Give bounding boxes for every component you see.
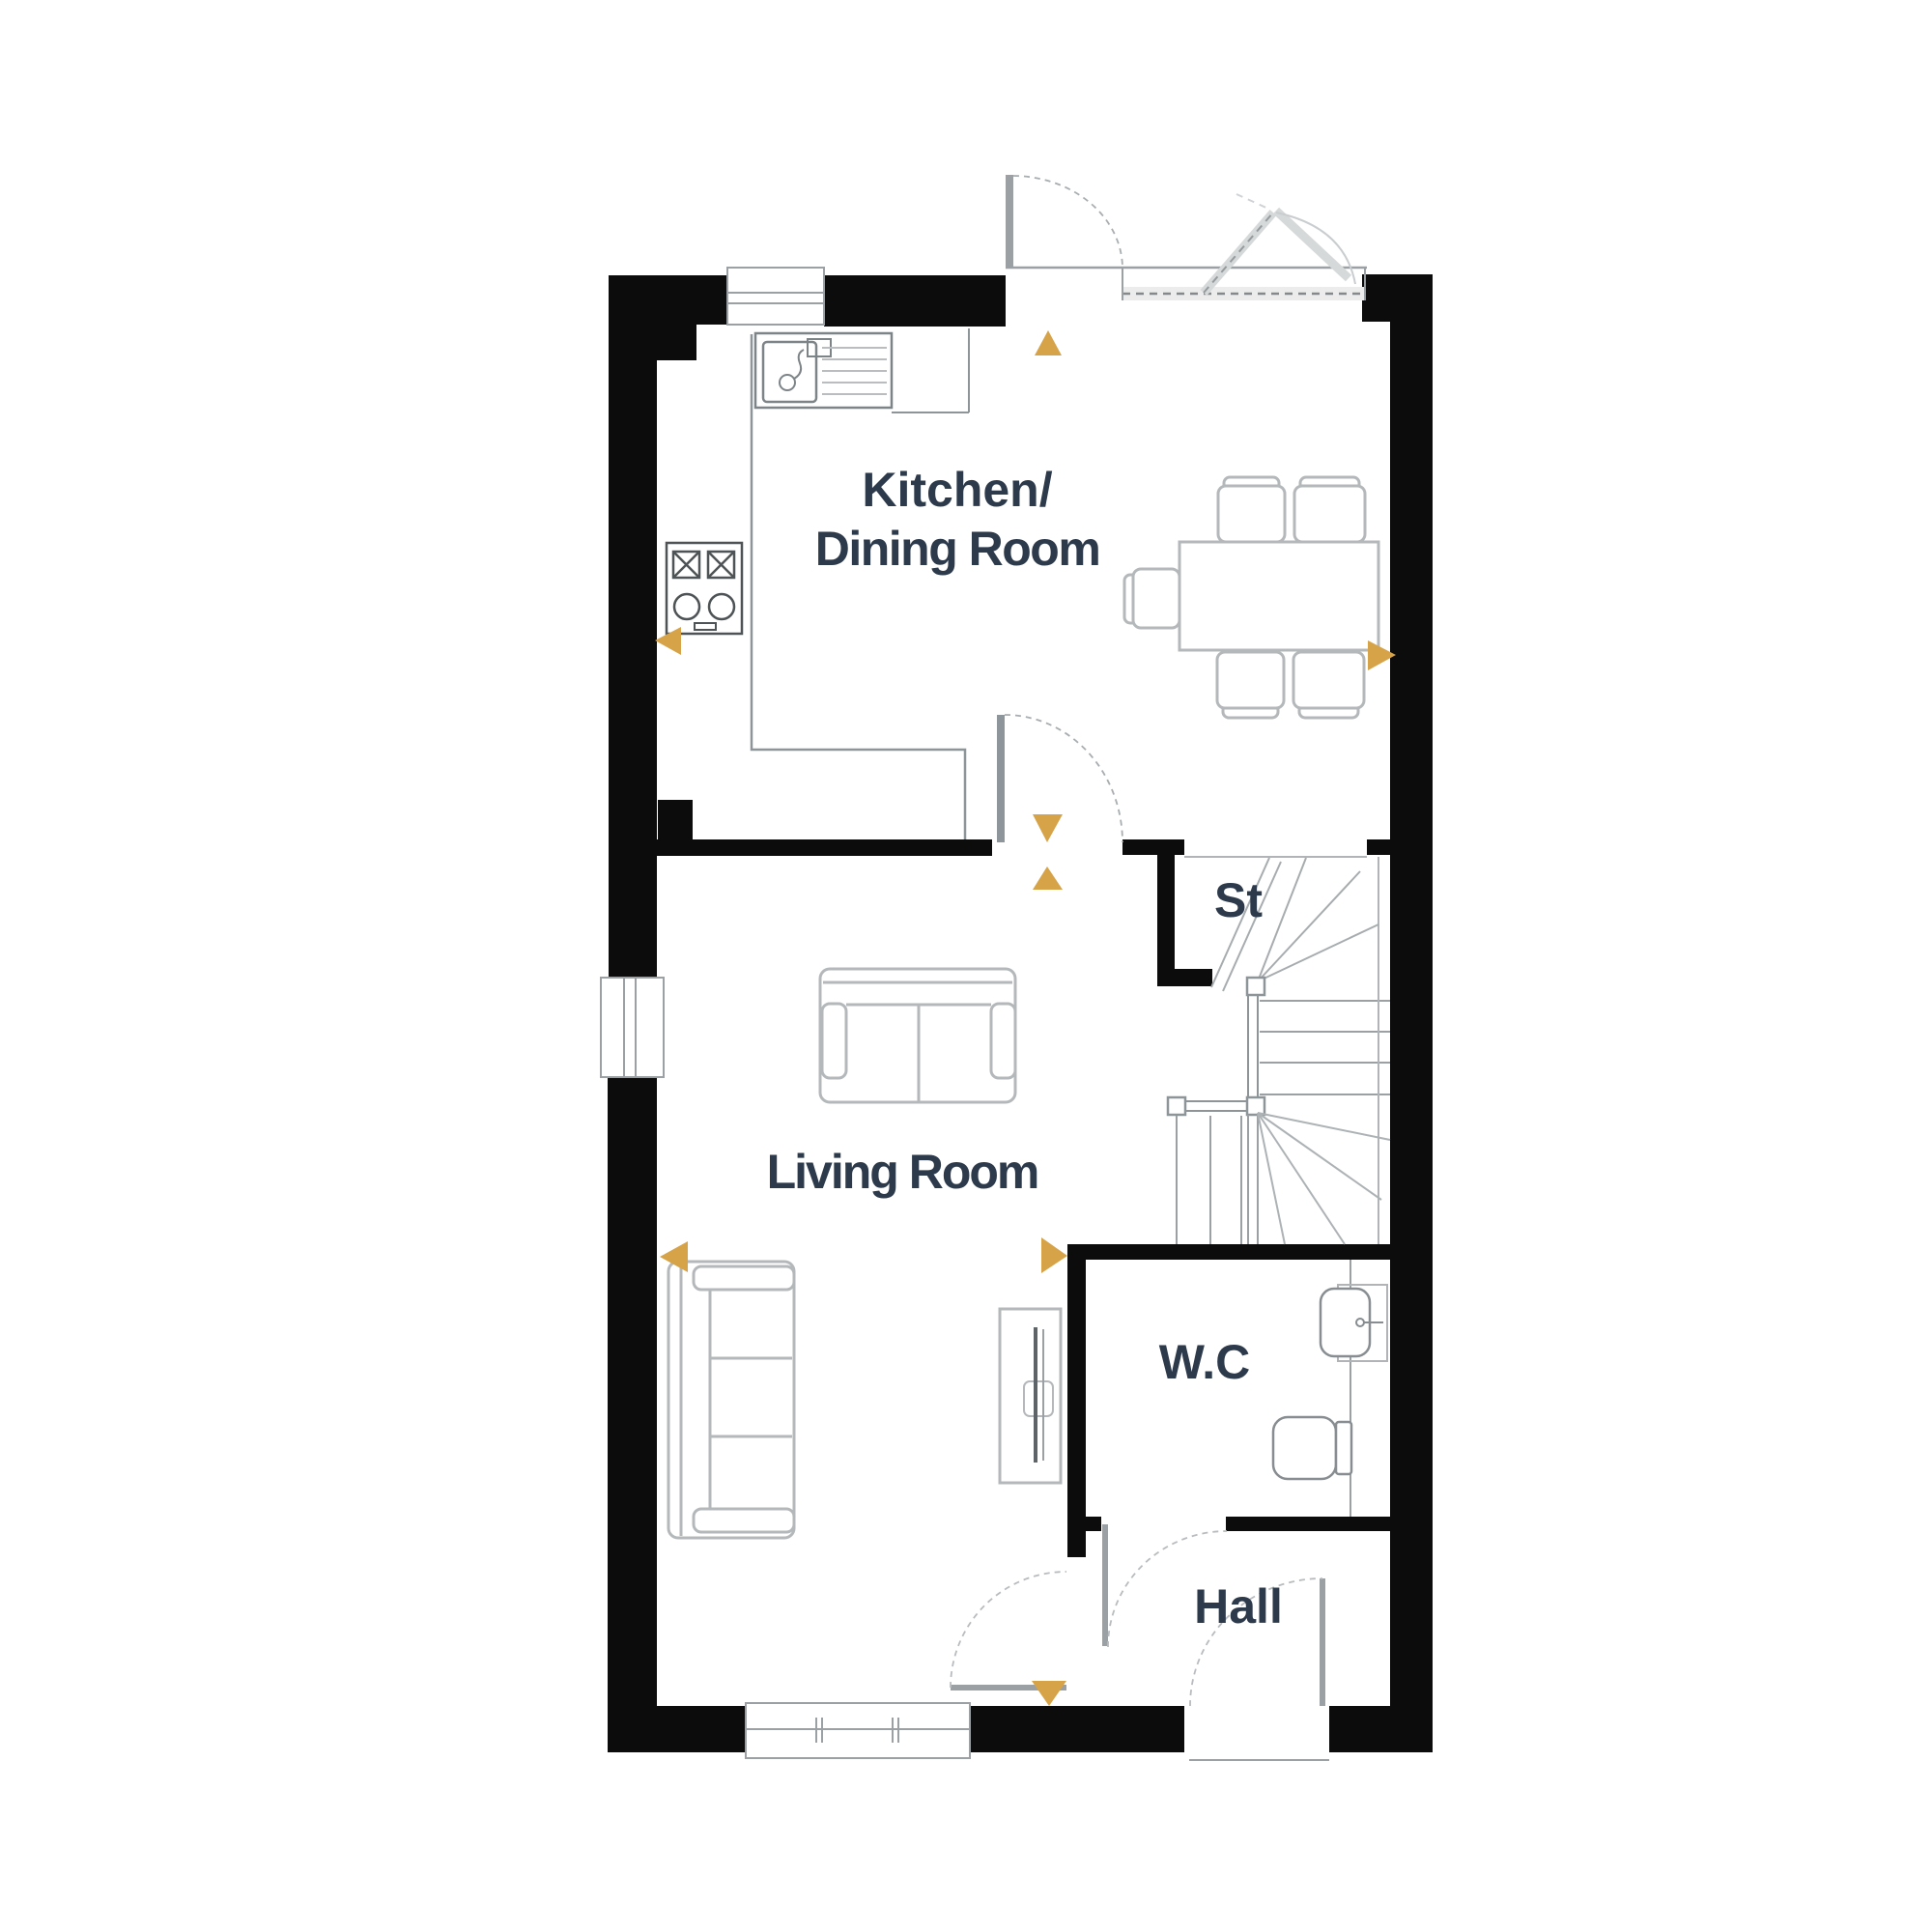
svg-text:Dining Room: Dining Room	[815, 522, 1100, 576]
svg-text:Kitchen/: Kitchen/	[862, 463, 1052, 517]
svg-text:Hall: Hall	[1194, 1579, 1283, 1634]
svg-text:W.C: W.C	[1159, 1335, 1250, 1389]
svg-text:St: St	[1214, 873, 1263, 927]
svg-text:Living Room: Living Room	[767, 1145, 1038, 1199]
